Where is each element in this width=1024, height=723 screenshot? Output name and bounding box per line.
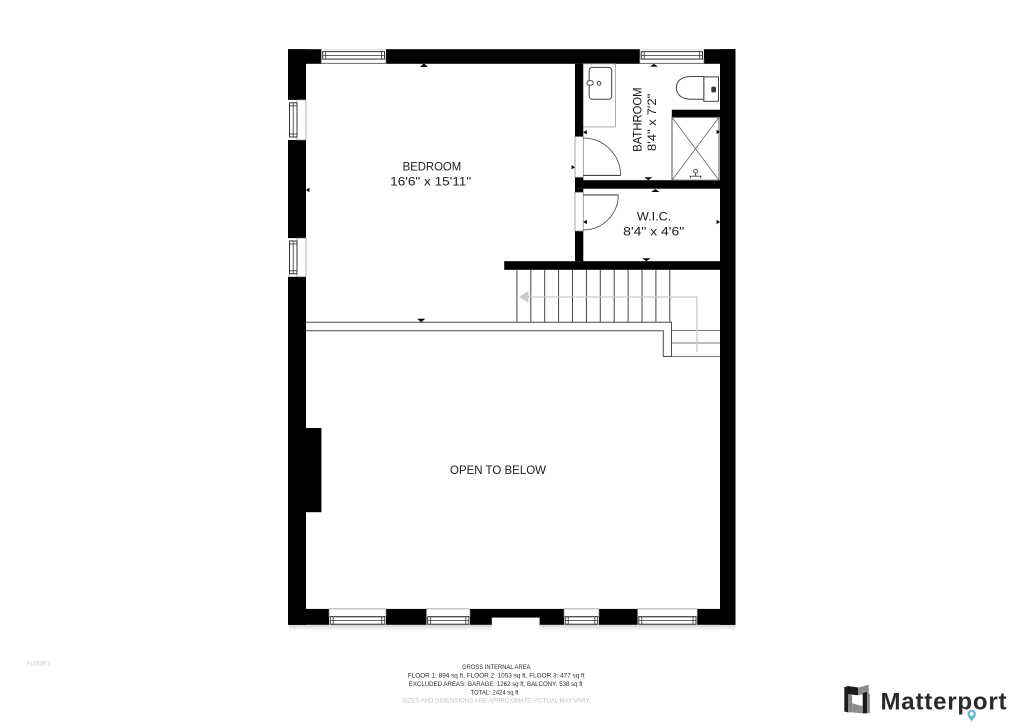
- svg-text:BATHROOM: BATHROOM: [631, 87, 644, 151]
- svg-text:TOTAL: 2424 sq ft: TOTAL: 2424 sq ft: [471, 689, 519, 696]
- svg-text:W.I.C.: W.I.C.: [637, 211, 671, 224]
- svg-text:BEDROOM: BEDROOM: [403, 160, 462, 173]
- svg-text:OPEN TO BELOW: OPEN TO BELOW: [450, 463, 546, 477]
- svg-text:16'6" x 15'11": 16'6" x 15'11": [390, 175, 471, 188]
- svg-text:FLOOR 1: 894 sq ft, FLOOR 2: 1: FLOOR 1: 894 sq ft, FLOOR 2: 1053 sq ft,…: [408, 672, 585, 679]
- svg-text:8'4" x 7'2": 8'4" x 7'2": [646, 94, 659, 151]
- svg-text:Matterport: Matterport: [881, 689, 1007, 716]
- svg-text:FLOOR 3: FLOOR 3: [27, 661, 51, 667]
- svg-text:8'4" x 4'6": 8'4" x 4'6": [623, 225, 684, 238]
- svg-text:EXCLUDED AREAS: GARAGE: 1262 s: EXCLUDED AREAS: GARAGE: 1262 sq ft, BALC…: [409, 681, 583, 688]
- svg-text:SIZES AND DIMENSIONS ARE APPRO: SIZES AND DIMENSIONS ARE APPROXIMATE, AC…: [402, 698, 591, 705]
- svg-text:GROSS INTERNAL AREA: GROSS INTERNAL AREA: [462, 664, 531, 671]
